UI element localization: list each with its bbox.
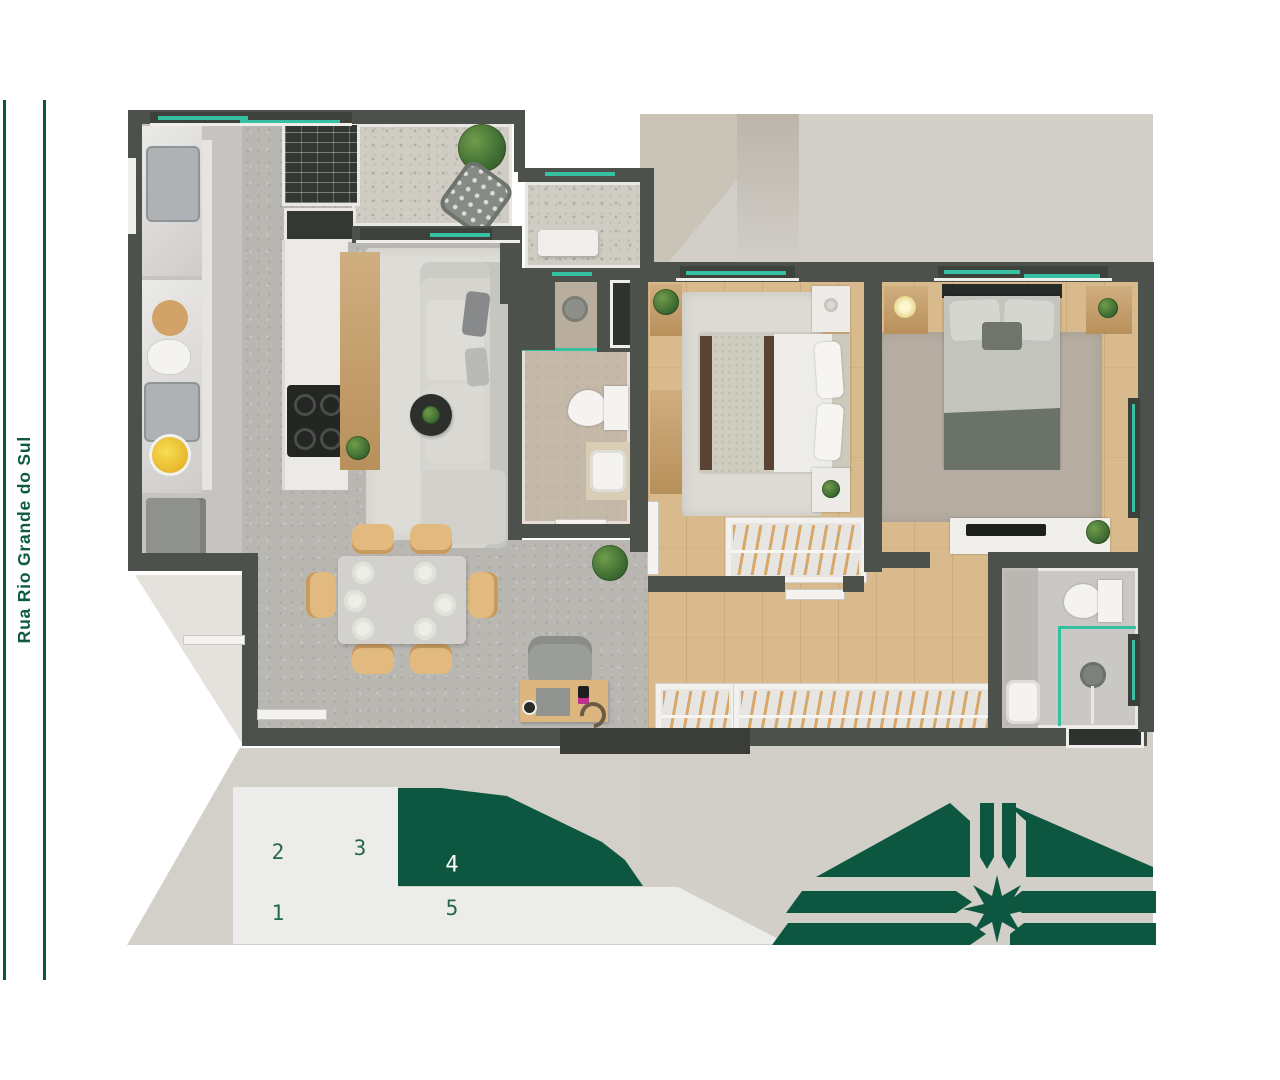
window-kitchen-glass (158, 116, 248, 120)
candle (824, 298, 838, 312)
shower-head-suite (1080, 662, 1106, 688)
shower-stem (1091, 686, 1094, 724)
keyplan-unit-highlight (398, 788, 643, 886)
wall-bathsuite-left (988, 552, 1002, 742)
bed1-pillow (814, 341, 844, 399)
window-bathsuite-glass (1132, 640, 1135, 700)
lamp (894, 296, 916, 318)
phone (578, 686, 589, 704)
bed1-runner-mid (764, 336, 774, 470)
wall-bath-bottom (508, 524, 647, 538)
door-entry-main (258, 710, 326, 719)
keyplan-unit-5: 5 (446, 896, 459, 920)
plate (434, 594, 456, 616)
dining-chair (352, 644, 394, 674)
sofa-pillow-light (464, 347, 489, 387)
door-bedroom1 (648, 502, 658, 574)
street-name-text: Rua Rio Grande do Sul (14, 436, 35, 643)
toilet-suite (1064, 584, 1102, 618)
wall-laundry-bottom (128, 553, 256, 571)
bed2-cushion (982, 322, 1022, 350)
dining-chair (306, 572, 336, 618)
wall-bedroom-divider (864, 282, 882, 572)
door-corridor-bedroom1 (786, 590, 844, 599)
wall-bedroom1-bottom (648, 576, 785, 592)
dining-chair (410, 524, 452, 554)
dining-chair (352, 524, 394, 554)
plant-nightstand1 (822, 480, 840, 498)
washer (146, 498, 206, 556)
plate (344, 590, 366, 612)
wall-bath-left (508, 282, 522, 540)
sink-suite (1006, 680, 1040, 724)
closet-rail (661, 715, 731, 718)
wall-bathsuite-top (988, 552, 1145, 568)
wall-right (1138, 262, 1154, 732)
ground-shadow-corner (135, 575, 243, 745)
cooktop-burner (294, 394, 316, 416)
compass-rose-icon (758, 795, 1158, 945)
plate (414, 618, 436, 640)
plant-bedroom1-shelf (653, 289, 679, 315)
mug (524, 702, 535, 713)
wall-bedroom1-bottom-2 (843, 576, 864, 592)
closet-rail (739, 715, 991, 718)
fruit-plate (152, 437, 188, 473)
shower-head-middle (562, 296, 588, 322)
plate (352, 618, 374, 640)
closet-rack-bedroom1 (726, 518, 866, 582)
keyplan-unit-3: 3 (354, 836, 367, 860)
floor-plan-page: Rua Rio Grande do Sul (0, 0, 1280, 1080)
laptop (536, 688, 570, 716)
toilet-middle (568, 390, 608, 426)
wall-left-lower (242, 553, 258, 745)
laundry-basin (148, 340, 190, 374)
closet-rail (731, 550, 861, 553)
window-bedroom1-sill (676, 278, 799, 281)
window-bedroom1-glass (686, 271, 786, 275)
plant-tv-console (1086, 520, 1110, 544)
toilet-tank-suite (1098, 580, 1122, 622)
plant-hall (592, 545, 628, 581)
window-balcony-glass (430, 233, 490, 237)
wall-bedroom2-bottom (864, 552, 930, 568)
keyplan-unit-4-highlighted: 4 (445, 853, 458, 878)
laundry-sink-bottom (144, 382, 200, 442)
window-kitchen-sill (150, 123, 352, 126)
dining-chair (468, 572, 498, 618)
entry-bench (538, 230, 598, 256)
window-bedroom2-side-glass (1132, 404, 1135, 512)
wood-cutting-board (152, 300, 188, 336)
bed2-blanket (944, 408, 1060, 470)
window-bedroom2-sill (934, 278, 1112, 281)
kitchen-grille (282, 122, 360, 206)
window-bedroom2-glass (944, 270, 1020, 274)
wall-bottom-niche (1066, 726, 1144, 748)
shower-glass-suite-h (1058, 626, 1136, 629)
bed1-blanket (712, 334, 764, 472)
keyplan-unit-1: 1 (272, 901, 285, 925)
wall-balcony-divider (514, 110, 525, 172)
door-kitchen-side (184, 636, 244, 644)
bedroom1-console (650, 390, 682, 494)
kitchen-niche (284, 208, 356, 242)
shower-glass-suite-v (1058, 626, 1061, 726)
keyplan-unit-2: 2 (272, 840, 285, 864)
window-entry-glass (552, 272, 592, 276)
wall-bath-right (630, 268, 648, 552)
keyplan (230, 782, 790, 947)
window-entry-top-glass (545, 172, 615, 176)
street-label: Rua Rio Grande do Sul (0, 100, 49, 980)
sink-middle (590, 450, 626, 492)
dining-chair (410, 644, 452, 674)
wall-bottom-step (560, 728, 750, 754)
ground-shadow-column (737, 114, 799, 264)
toilet-tank-middle (604, 386, 628, 430)
bed1-runner-left (700, 336, 712, 470)
plant-sideboard (346, 436, 370, 460)
wall-entry-right (640, 168, 654, 268)
plate (414, 562, 436, 584)
laundry-sink-top (146, 146, 200, 222)
plate (352, 562, 374, 584)
plant-nightstand2 (1098, 298, 1118, 318)
window-laundry-side (128, 158, 136, 234)
cooktop-burner (320, 428, 342, 450)
laundry-shelf (202, 140, 212, 490)
tv (966, 524, 1046, 536)
plant-coffee-table (422, 406, 440, 424)
cooktop-burner (320, 394, 342, 416)
cooktop-burner (294, 428, 316, 450)
window-balcony-sill (356, 240, 520, 243)
bed1-pillow (814, 403, 844, 461)
